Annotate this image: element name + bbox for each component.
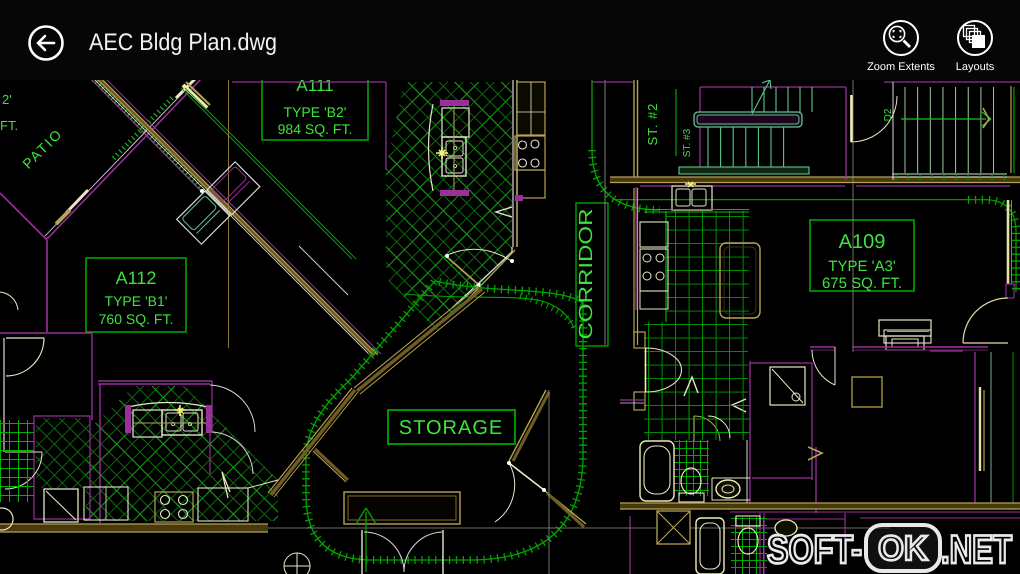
svg-text:ST. #3: ST. #3	[682, 128, 693, 157]
svg-text:984 SQ. FT.: 984 SQ. FT.	[278, 121, 353, 137]
svg-text:STORAGE: STORAGE	[399, 417, 503, 439]
svg-text:CORRIDOR: CORRIDOR	[576, 209, 597, 340]
svg-text:2': 2'	[2, 92, 12, 107]
svg-text:ST. #2: ST. #2	[645, 103, 660, 146]
svg-text:OK: OK	[878, 529, 928, 568]
svg-text:AEC Bldg Plan.dwg: AEC Bldg Plan.dwg	[89, 29, 277, 56]
svg-text:.NET: .NET	[941, 528, 1012, 572]
svg-text:Zoom Extents: Zoom Extents	[867, 61, 935, 73]
svg-text:TYPE 'B1': TYPE 'B1'	[105, 293, 168, 309]
svg-text:A112: A112	[116, 268, 157, 288]
svg-text:FT.: FT.	[0, 118, 18, 133]
svg-text:760 SQ. FT.: 760 SQ. FT.	[99, 311, 174, 327]
svg-text:A109: A109	[839, 231, 886, 253]
svg-text:SOFT-: SOFT-	[767, 528, 862, 572]
svg-text:TYPE 'A3': TYPE 'A3'	[828, 258, 896, 275]
svg-text:Layouts: Layouts	[956, 61, 995, 73]
svg-text:675 SQ. FT.: 675 SQ. FT.	[822, 275, 902, 292]
svg-text:D2: D2	[883, 108, 894, 121]
svg-text:TYPE 'B2': TYPE 'B2'	[284, 104, 347, 120]
